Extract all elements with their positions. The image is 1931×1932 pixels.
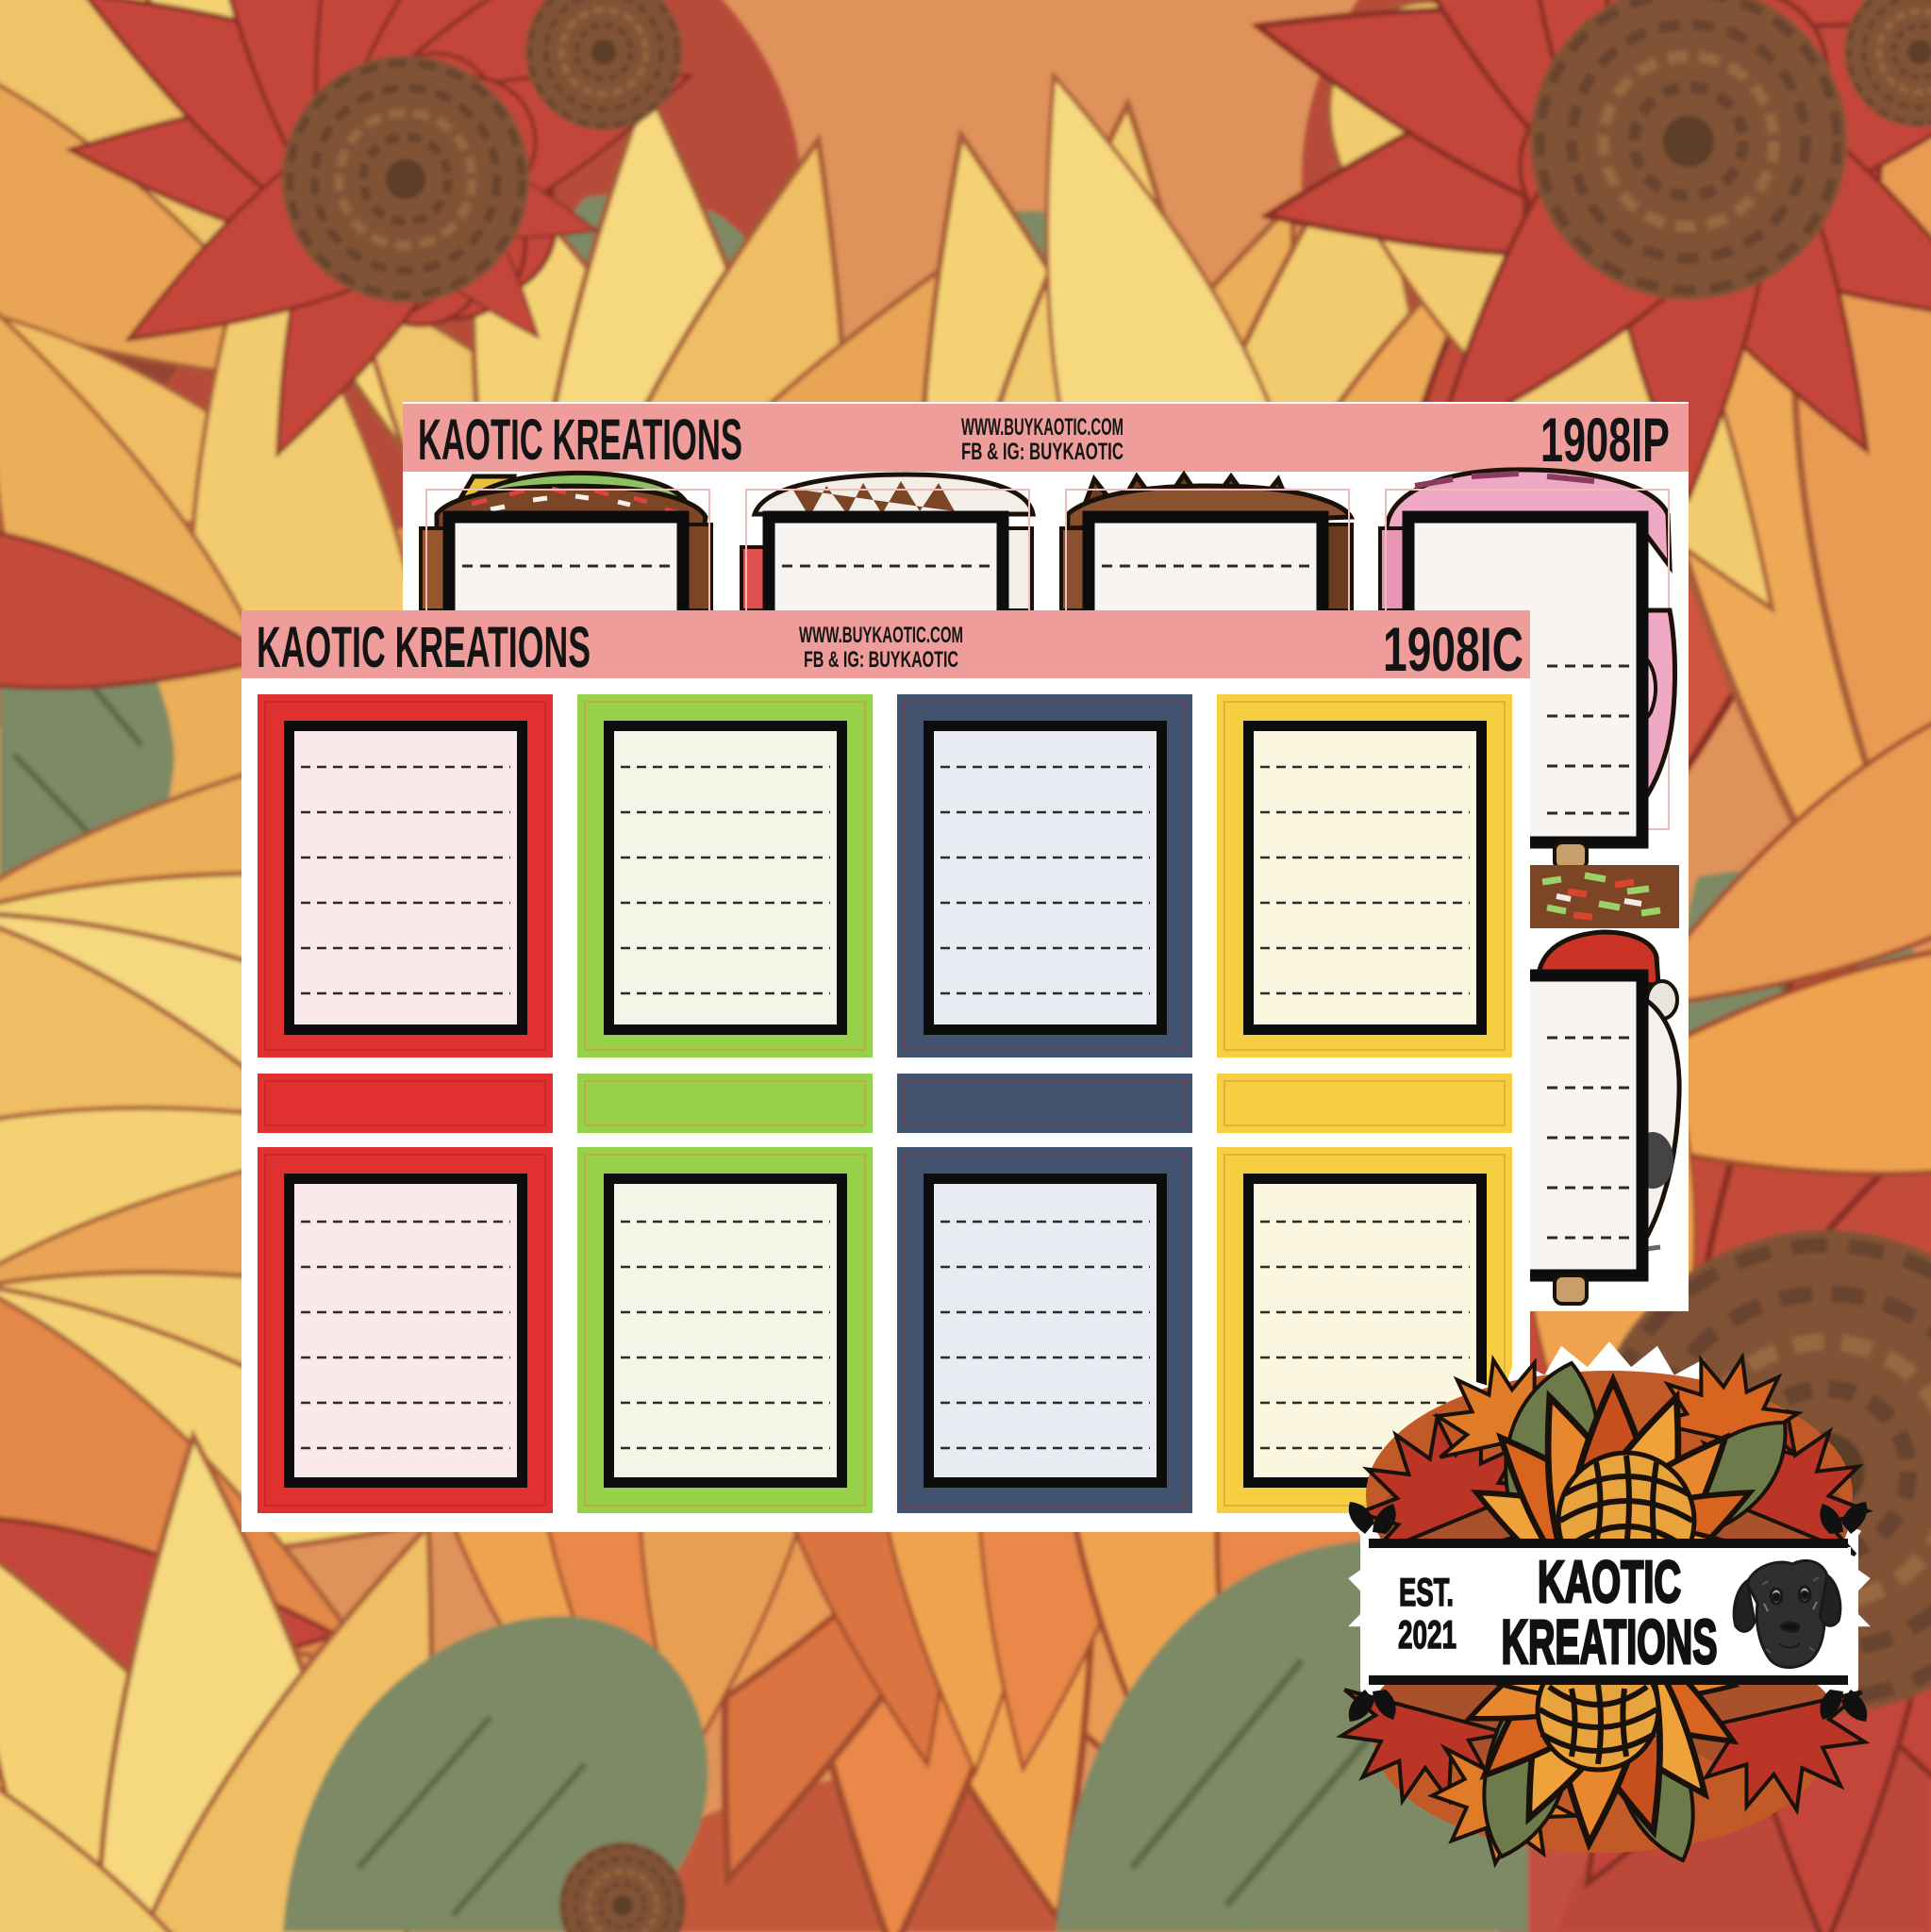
svg-text:1908IC: 1908IC	[1383, 614, 1523, 684]
svg-text:FB & IG: BUYKAOTIC: FB & IG: BUYKAOTIC	[804, 647, 958, 673]
svg-text:KAOTIC: KAOTIC	[1538, 1550, 1681, 1615]
svg-text:1908IP: 1908IP	[1540, 405, 1670, 475]
svg-text:KAOTIC KREATIONS: KAOTIC KREATIONS	[257, 615, 591, 679]
svg-text:KREATIONS: KREATIONS	[1502, 1607, 1718, 1676]
svg-text:KAOTIC KREATIONS: KAOTIC KREATIONS	[418, 408, 742, 472]
svg-text:2021: 2021	[1398, 1612, 1457, 1657]
svg-text:EST.: EST.	[1399, 1570, 1454, 1614]
svg-text:WWW.BUYKAOTIC.COM: WWW.BUYKAOTIC.COM	[961, 414, 1124, 441]
svg-text:FB & IG: BUYKAOTIC: FB & IG: BUYKAOTIC	[961, 439, 1124, 465]
svg-text:WWW.BUYKAOTIC.COM: WWW.BUYKAOTIC.COM	[799, 623, 963, 648]
